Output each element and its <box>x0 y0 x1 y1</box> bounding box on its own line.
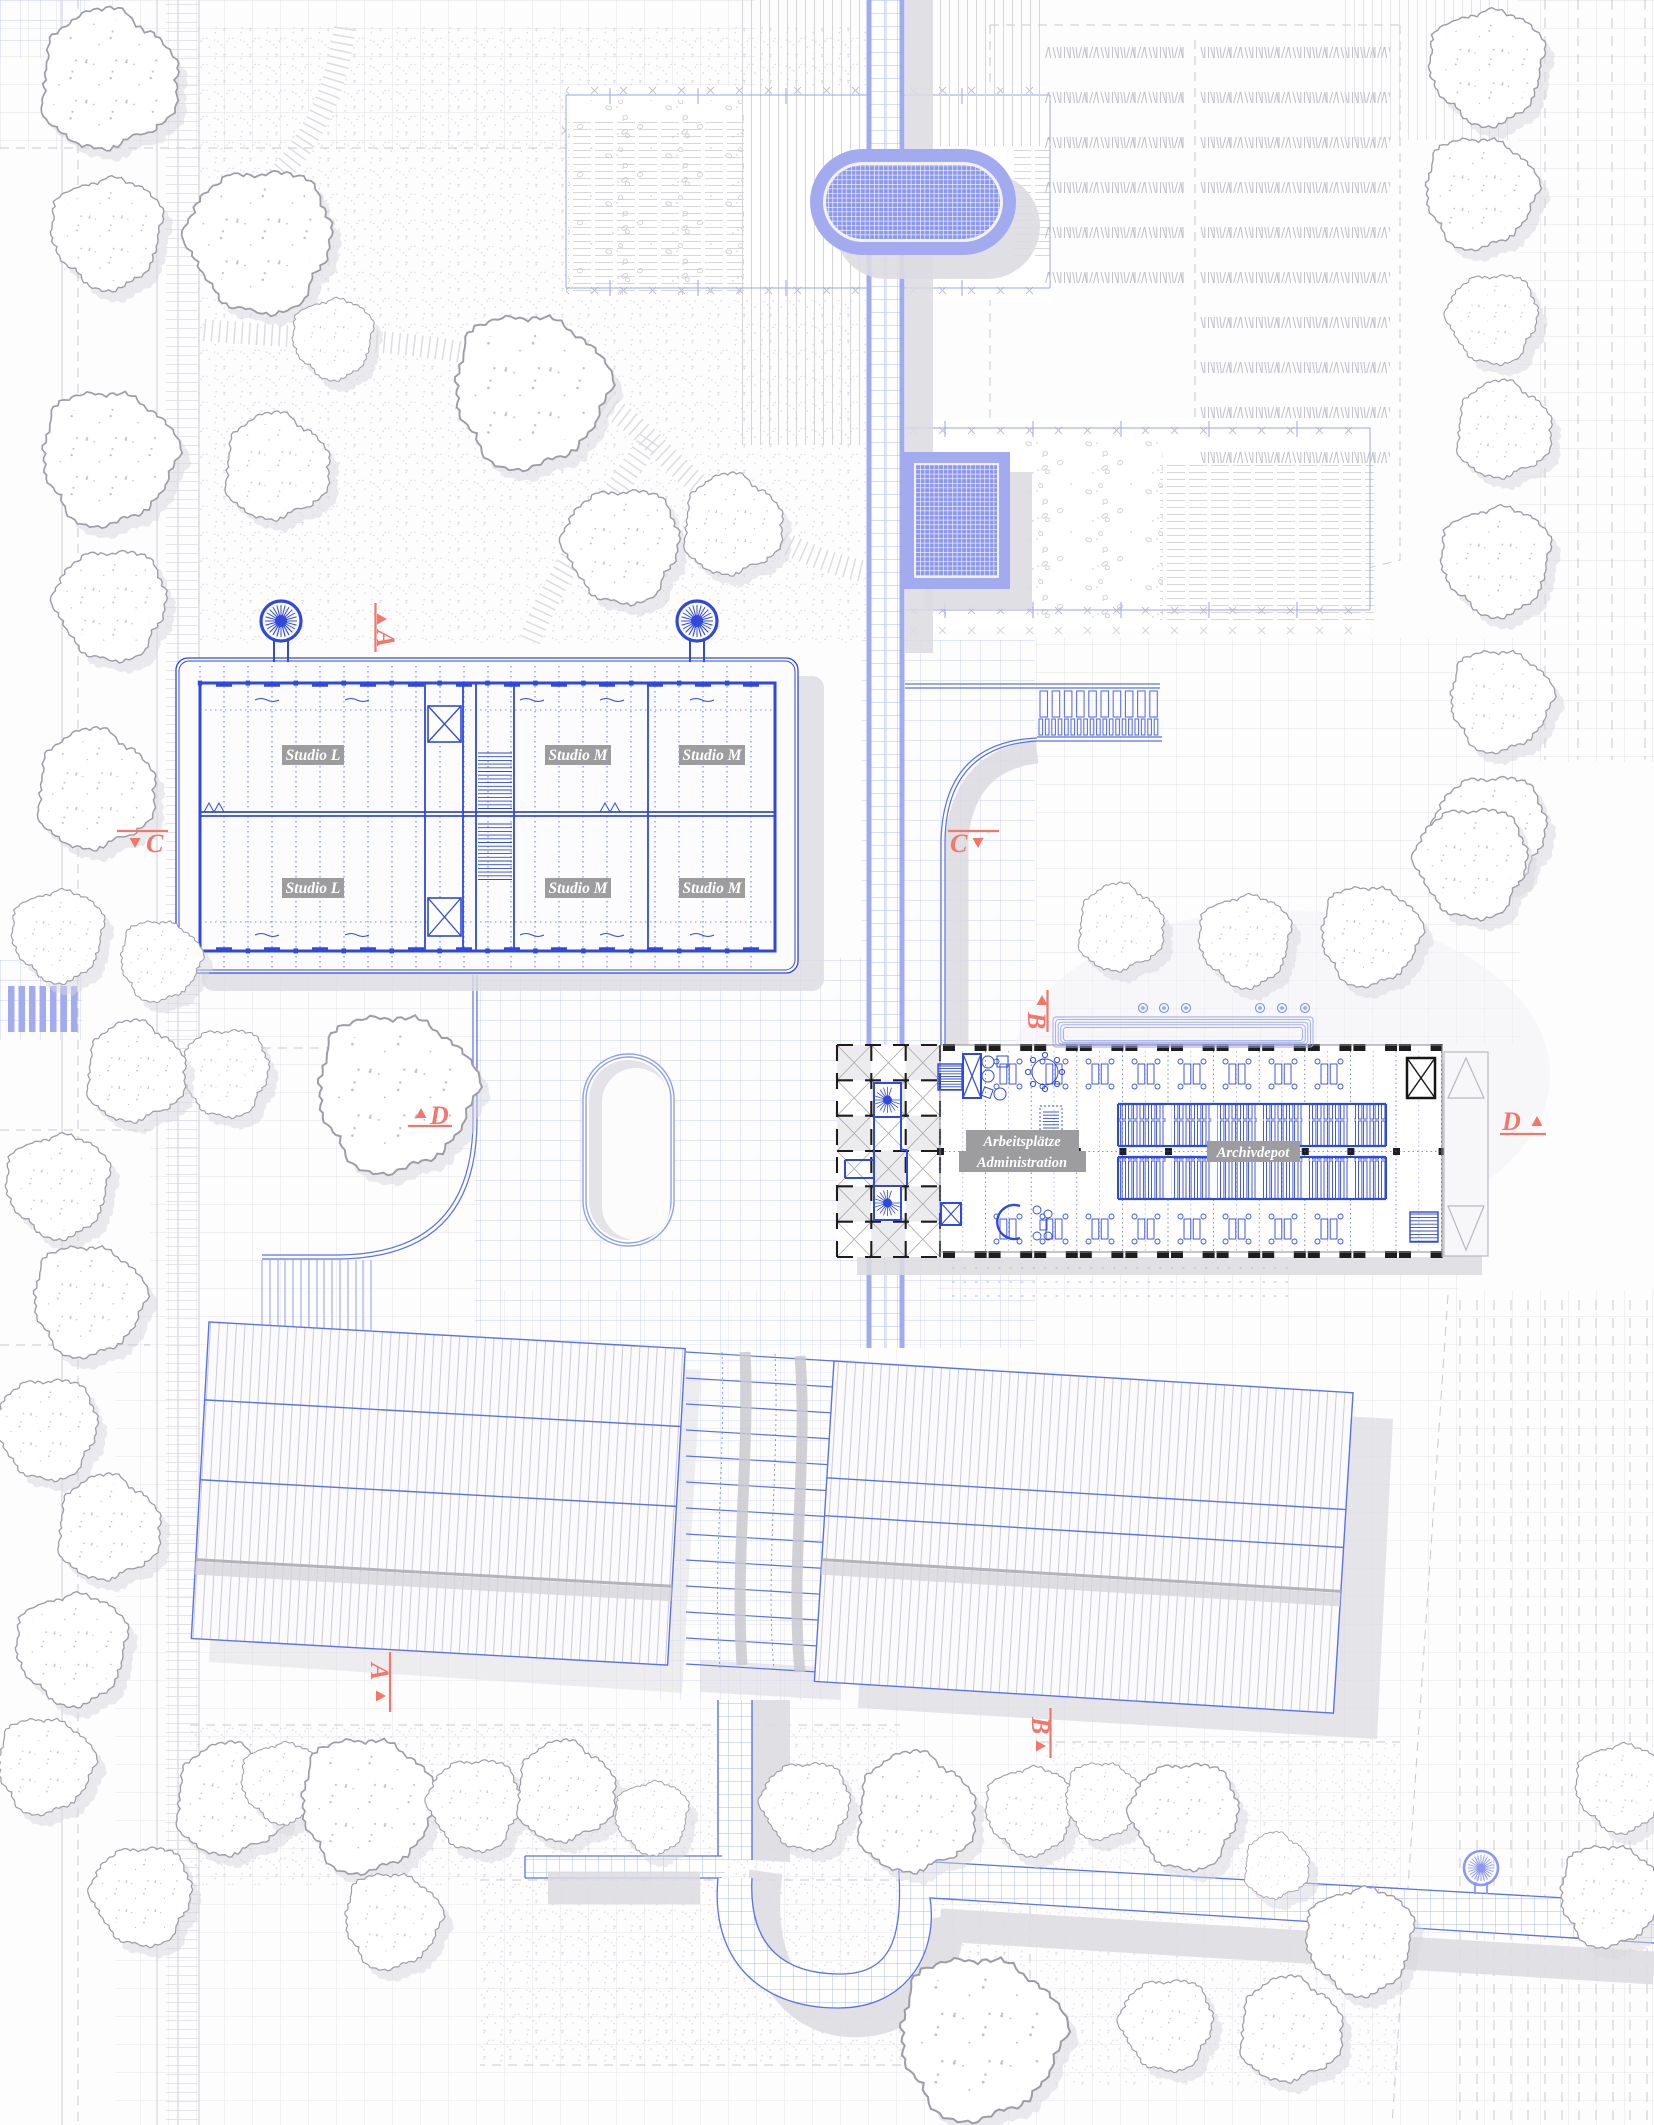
svg-text:Studio M: Studio M <box>548 747 608 764</box>
svg-text:A: A <box>365 1661 394 1680</box>
svg-text:A: A <box>371 628 400 647</box>
svg-text:D: D <box>1501 1107 1521 1136</box>
svg-text:C: C <box>146 829 164 858</box>
svg-text:B: B <box>1022 1011 1051 1029</box>
svg-text:Administration: Administration <box>976 1155 1067 1171</box>
svg-text:B: B <box>1026 1716 1055 1734</box>
svg-text:Studio M: Studio M <box>682 880 742 897</box>
svg-text:C: C <box>950 829 968 858</box>
svg-text:Studio L: Studio L <box>286 880 341 897</box>
svg-text:Studio M: Studio M <box>548 880 608 897</box>
svg-text:Archivdepot: Archivdepot <box>1216 1145 1290 1161</box>
svg-text:Studio M: Studio M <box>682 747 742 764</box>
svg-text:D: D <box>429 1101 449 1130</box>
svg-text:Arbeitsplätze: Arbeitsplätze <box>982 1134 1061 1150</box>
svg-text:Studio L: Studio L <box>286 747 341 764</box>
